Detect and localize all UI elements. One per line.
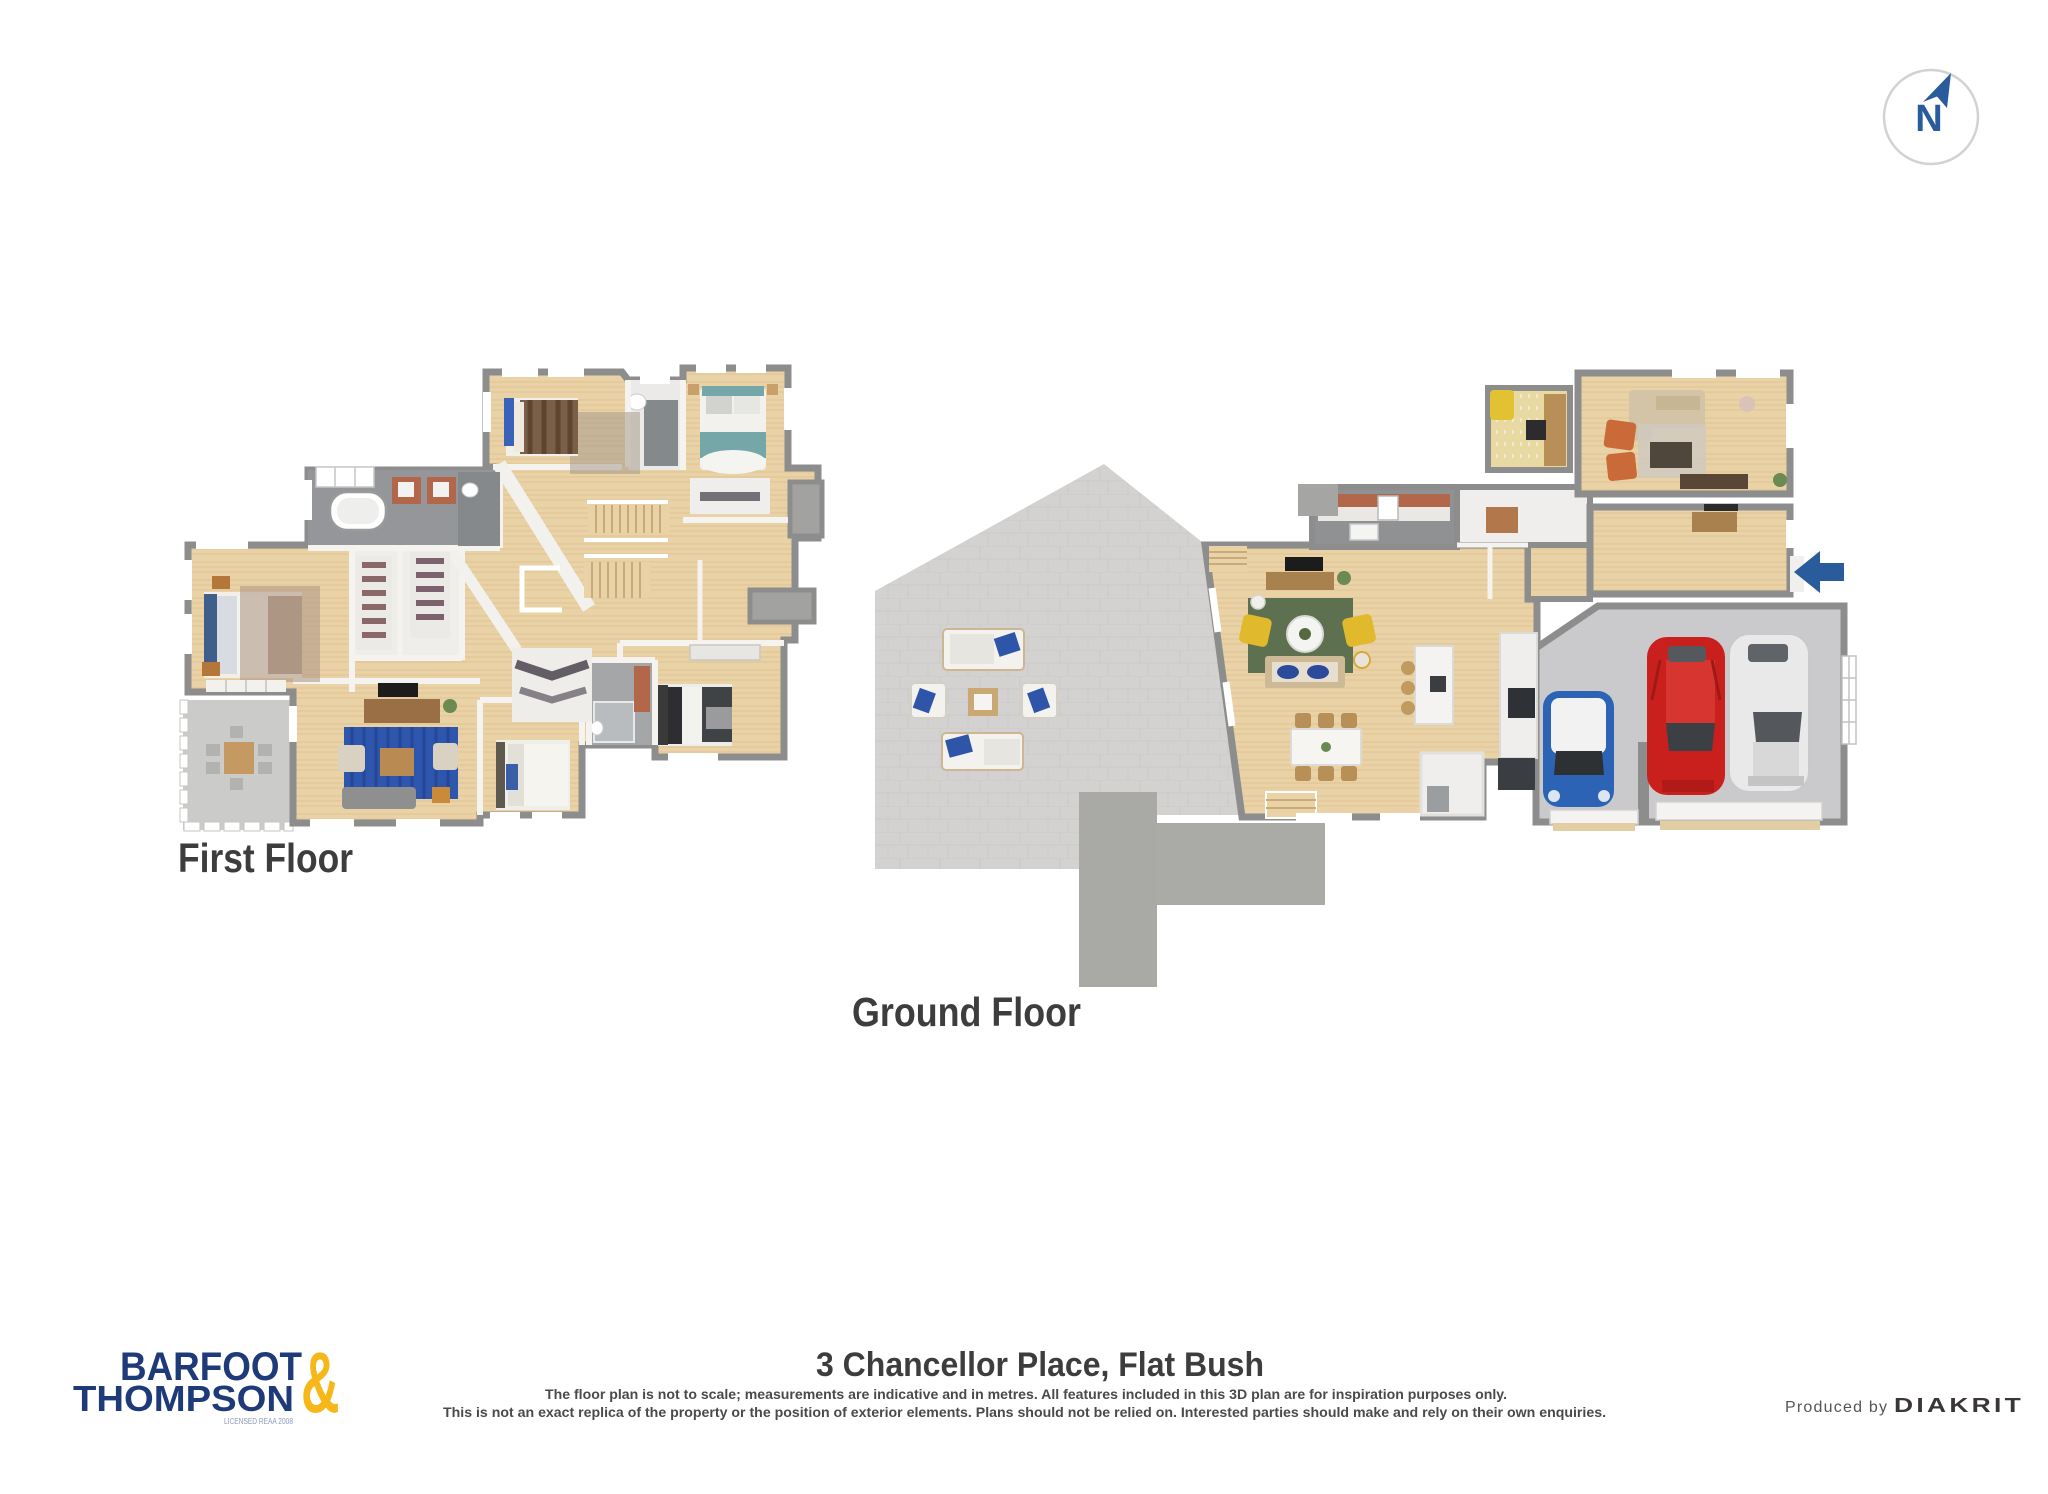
- svg-text:First Floor: First Floor: [178, 835, 353, 881]
- svg-text:The floor plan is not to scale: The floor plan is not to scale; measurem…: [545, 1386, 1507, 1402]
- svg-text:Ground Floor: Ground Floor: [852, 989, 1081, 1035]
- svg-text:LICENSED REAA 2008: LICENSED REAA 2008: [224, 1417, 293, 1426]
- svg-text:Produced by: Produced by: [1785, 1399, 1887, 1416]
- svg-text:This is not an exact replica o: This is not an exact replica of the prop…: [443, 1404, 1606, 1420]
- svg-text:3 Chancellor Place, Flat Bush: 3 Chancellor Place, Flat Bush: [816, 1346, 1264, 1384]
- svg-text:THOMPSON: THOMPSON: [73, 1378, 294, 1419]
- svg-text:N: N: [1915, 98, 1942, 140]
- svg-text:&: &: [301, 1335, 340, 1431]
- svg-text:DIAKRIT: DIAKRIT: [1894, 1394, 2024, 1416]
